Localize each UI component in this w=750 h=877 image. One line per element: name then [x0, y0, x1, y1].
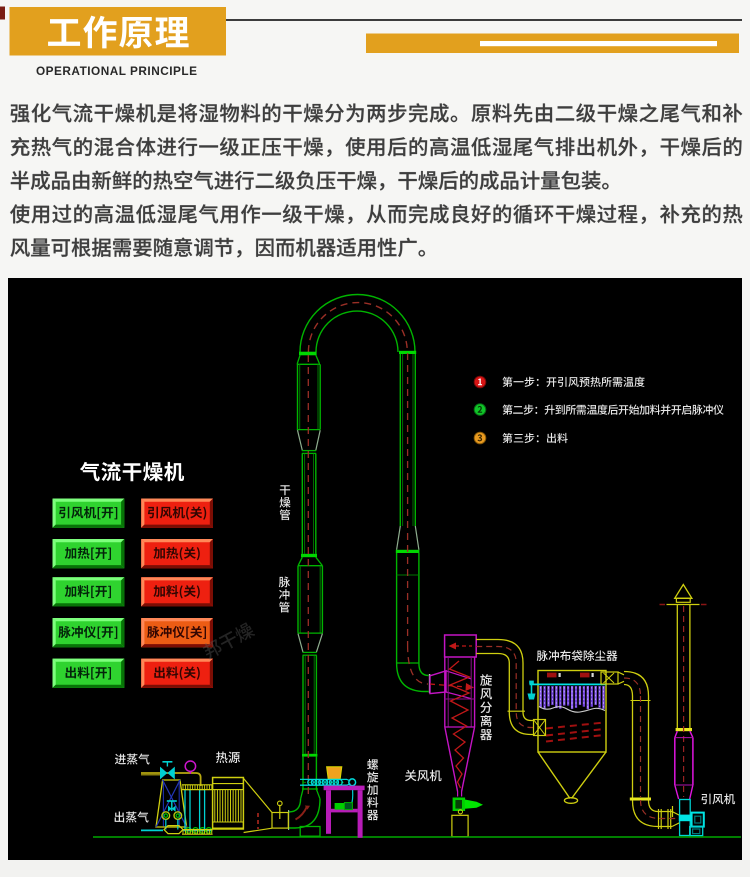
svg-text:OPERATIONAL PRINCIPLE: OPERATIONAL PRINCIPLE [36, 64, 197, 78]
